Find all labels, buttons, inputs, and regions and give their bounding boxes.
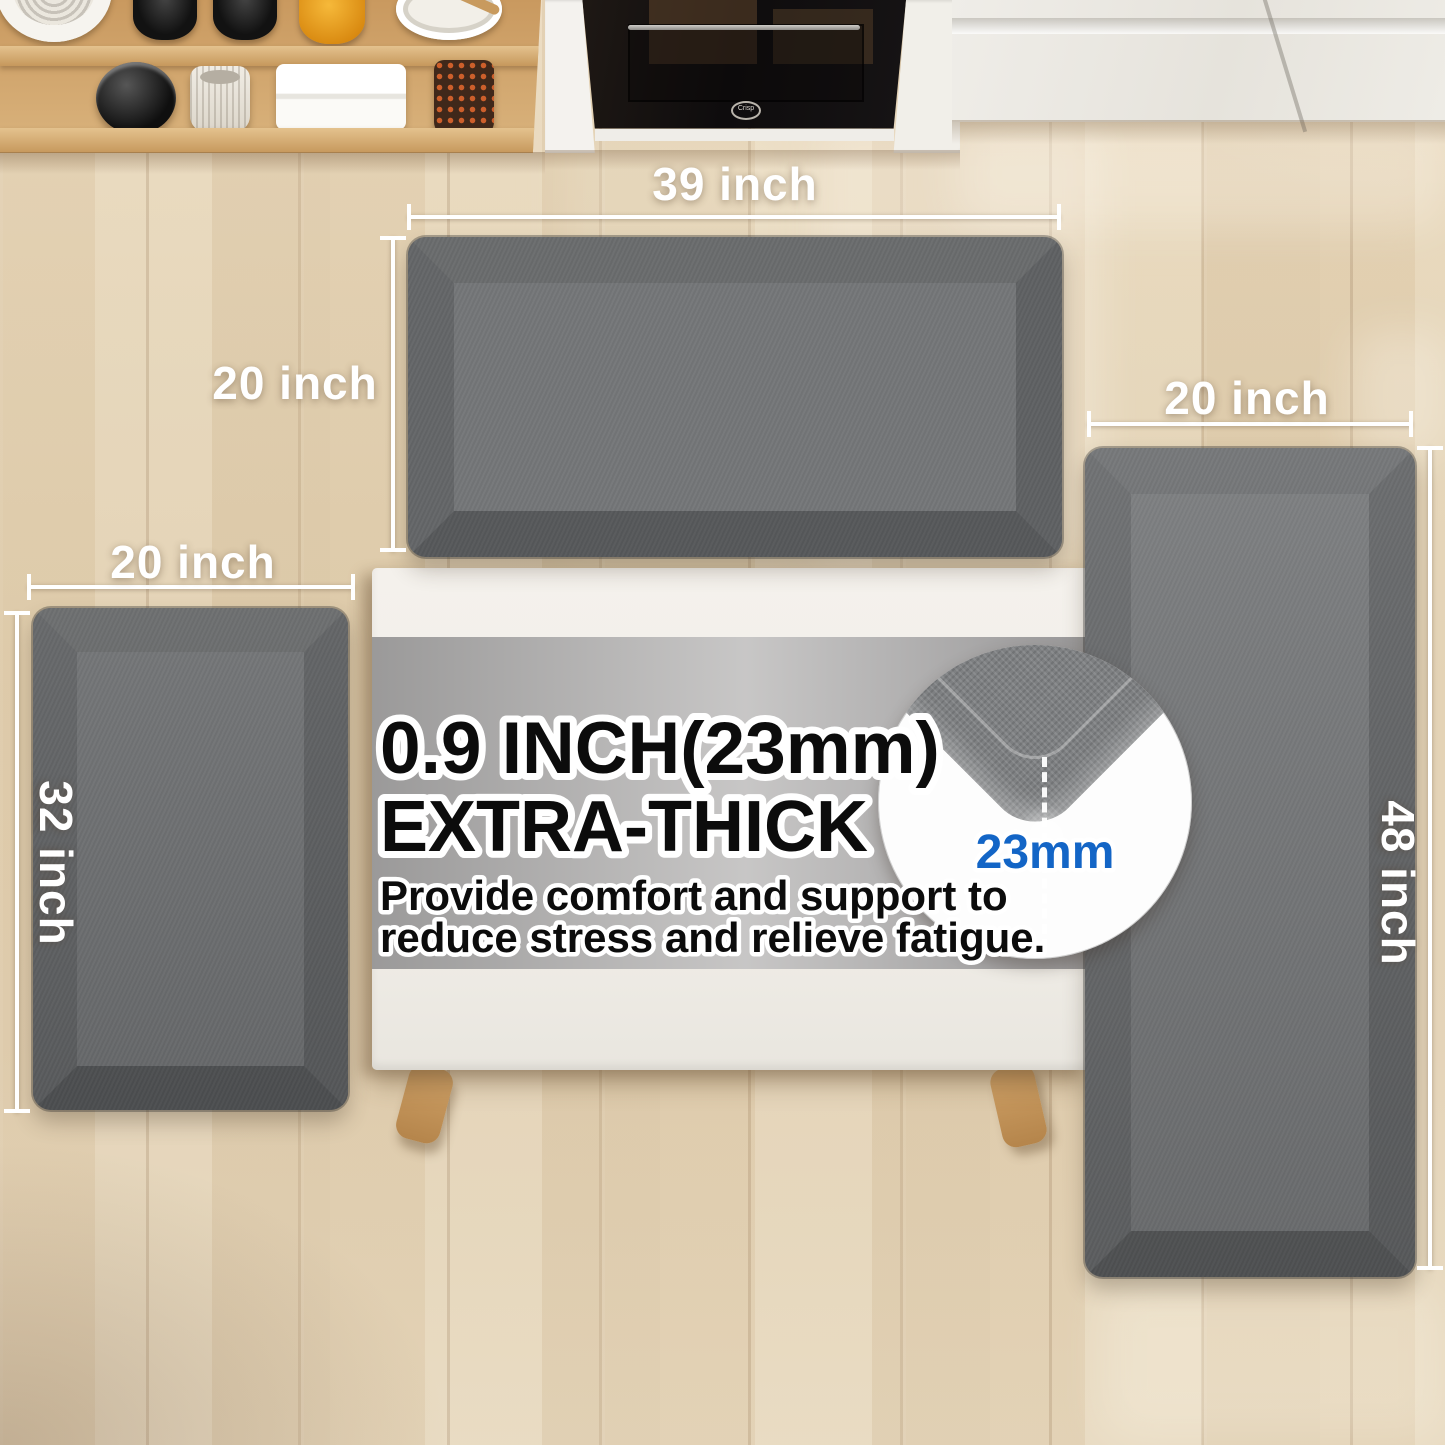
- white-cabinets: [952, 0, 1445, 122]
- oven-badge: Crisp: [731, 101, 761, 120]
- thickness-dashed-line: [1042, 757, 1047, 949]
- cabinet-handle-groove: [952, 18, 1445, 34]
- dim-label-right-mat-width: 20 inch: [1122, 371, 1372, 425]
- dim-label-top-mat-width: 39 inch: [570, 157, 900, 211]
- striped-canister: [0, 0, 112, 42]
- oven-inner-window: [628, 24, 864, 101]
- mat-bevel-edge: [408, 237, 1062, 557]
- shelf-floor-shadow: [0, 152, 545, 174]
- dim-line-right-mat-height: [1428, 447, 1432, 1269]
- dim-label-left-mat-height: 32 inch: [29, 738, 83, 988]
- oven-handle-bar: [628, 25, 860, 30]
- white-ribbed-jar: [190, 66, 250, 132]
- dim-label-right-mat-height: 48 inch: [1371, 758, 1425, 1008]
- wooden-shelf: [0, 0, 541, 153]
- kitchen-mat-top: [408, 237, 1062, 557]
- thickness-zoom-inset: [878, 645, 1192, 959]
- black-jug: [96, 62, 176, 134]
- dim-label-left-mat-width: 20 inch: [68, 535, 318, 589]
- product-infographic-scene: Crisp 39 inch 20 inch 20 inch 32 inch 20…: [0, 0, 1445, 1445]
- oven: Crisp: [545, 0, 960, 153]
- folded-towels: [276, 64, 406, 130]
- shelf-front-edge: [0, 128, 541, 153]
- black-bottle: [213, 0, 277, 40]
- spice-jar: [434, 60, 494, 136]
- dim-line-top-mat-width: [408, 215, 1060, 219]
- floor-light-patch: [1100, 1280, 1445, 1440]
- oven-bottom-sill: [595, 129, 894, 141]
- dim-label-top-mat-height: 20 inch: [170, 356, 420, 410]
- dim-line-left-mat-height: [15, 612, 19, 1112]
- orange-juice-jar: [299, 0, 365, 44]
- black-bottle: [133, 0, 197, 40]
- cabinet-floor-shadow: [952, 120, 1445, 144]
